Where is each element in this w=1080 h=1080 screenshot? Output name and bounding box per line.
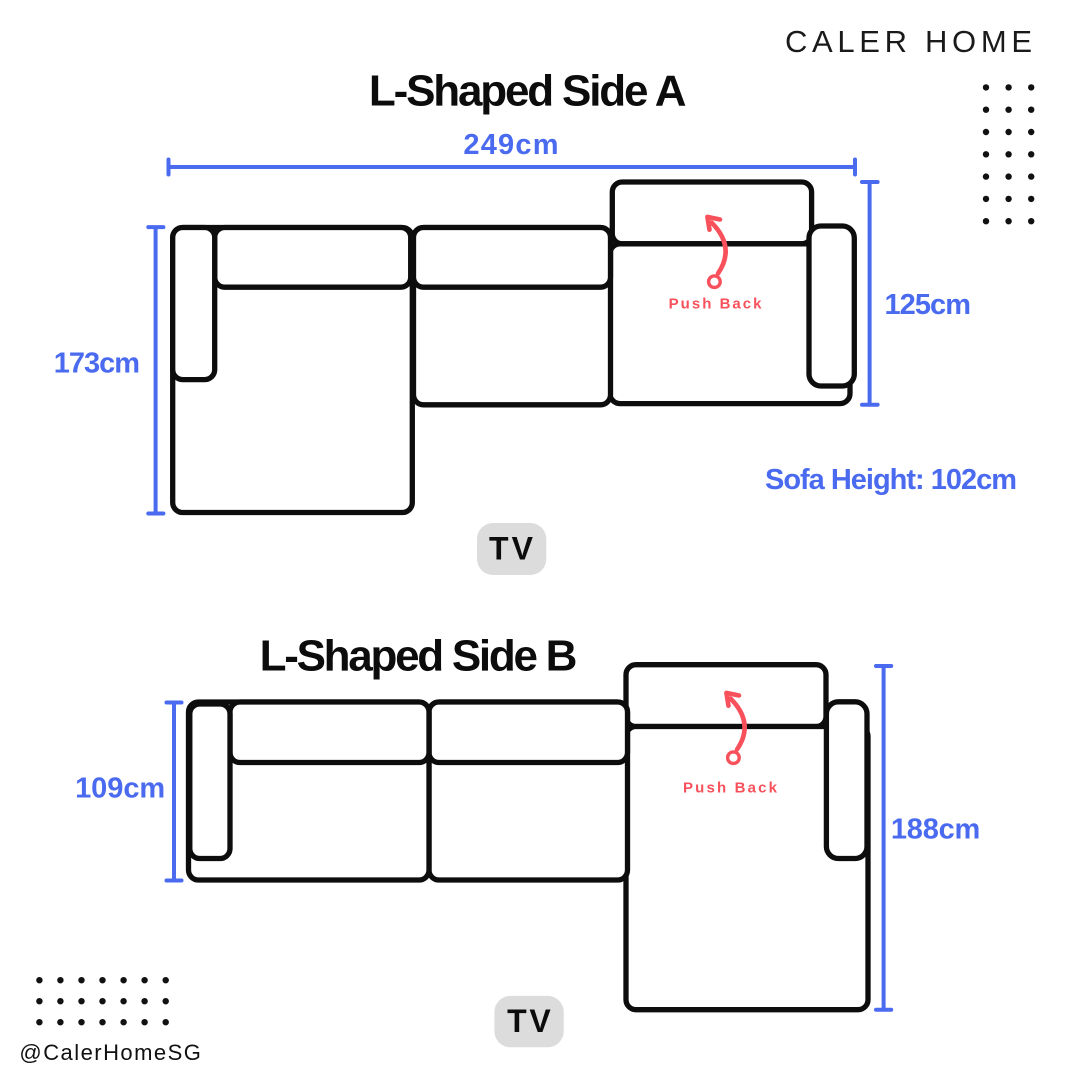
svg-text:L-Shaped Side A: L-Shaped Side A xyxy=(369,67,687,116)
svg-text:109cm: 109cm xyxy=(75,773,165,805)
svg-text:@CalerHomeSG: @CalerHomeSG xyxy=(19,1040,201,1065)
svg-text:L-Shaped Side B: L-Shaped Side B xyxy=(260,632,578,681)
svg-text:249cm: 249cm xyxy=(463,129,558,161)
svg-text:188cm: 188cm xyxy=(891,814,980,846)
svg-text:TV: TV xyxy=(489,531,534,567)
svg-text:125cm: 125cm xyxy=(885,289,972,321)
svg-text:TV: TV xyxy=(507,1003,551,1039)
svg-text:173cm: 173cm xyxy=(54,348,140,380)
svg-text:Push Back: Push Back xyxy=(683,780,778,797)
svg-text:Push Back: Push Back xyxy=(669,296,763,313)
svg-text:Sofa Height: 102cm: Sofa Height: 102cm xyxy=(765,464,1017,496)
